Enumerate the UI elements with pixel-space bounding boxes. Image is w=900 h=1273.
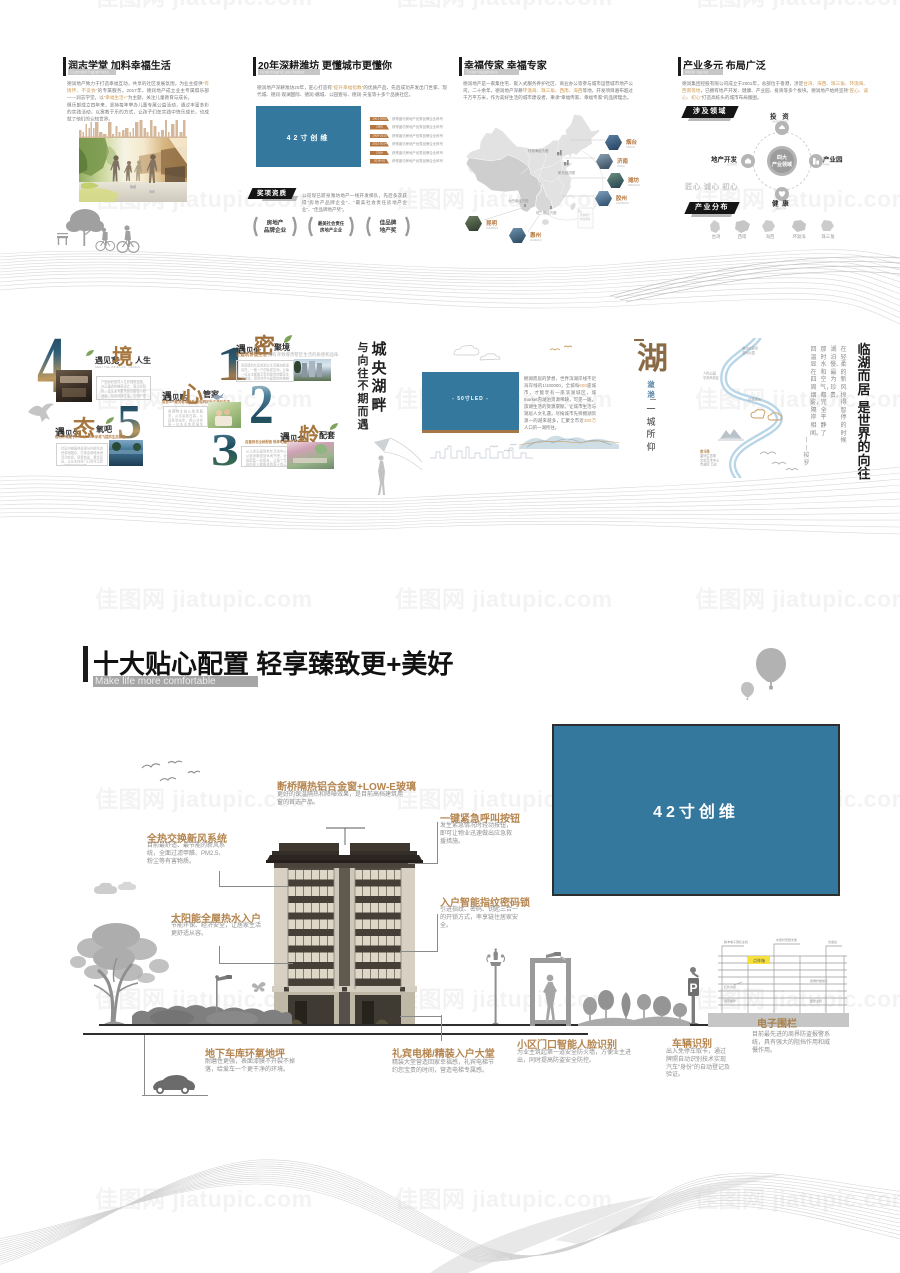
svg-text:四大: 四大	[777, 154, 787, 161]
svg-text:海西: 海西	[766, 233, 775, 240]
svg-text:环渤海: 环渤海	[792, 233, 806, 240]
svg-text:点阵箱: 点阵箱	[753, 957, 765, 963]
svg-text:环渤海经济圈: 环渤海经济圈	[528, 148, 549, 153]
svg-text:中置杆安装支架: 中置杆安装支架	[776, 938, 797, 942]
svg-text:产业领域: 产业领域	[772, 161, 792, 168]
svg-text:最美社会责任: 最美社会责任	[318, 220, 345, 227]
svg-text:大西南经济圈: 大西南经济圈	[508, 198, 529, 203]
svg-text:西南: 西南	[738, 233, 747, 240]
svg-text:房地产企业: 房地产企业	[320, 227, 343, 234]
svg-text:佳品牌: 佳品牌	[380, 219, 397, 227]
svg-text:珠三角经济圈: 珠三角经济圈	[536, 210, 557, 215]
svg-text:脉冲电子围栏主机: 脉冲电子围栏主机	[724, 939, 748, 944]
svg-text:避雷器件: 避雷器件	[724, 998, 736, 1003]
svg-text:珠三角: 珠三角	[821, 233, 834, 240]
svg-text:终端杆绝缘子: 终端杆绝缘子	[810, 978, 828, 983]
svg-text:地产奖: 地产奖	[380, 226, 397, 234]
svg-text:德润地产: 德润地产	[580, 213, 591, 217]
svg-text:P: P	[689, 981, 697, 995]
svg-text:布局城市: 布局城市	[580, 217, 591, 221]
svg-text:合金丝: 合金丝	[828, 939, 837, 944]
svg-text:台湾: 台湾	[712, 233, 721, 240]
svg-text:胶东经济圈: 胶东经济圈	[558, 170, 576, 175]
svg-text:品牌企业: 品牌企业	[264, 226, 287, 234]
svg-text:报警主机: 报警主机	[810, 998, 822, 1003]
svg-text:房地产: 房地产	[267, 219, 284, 227]
